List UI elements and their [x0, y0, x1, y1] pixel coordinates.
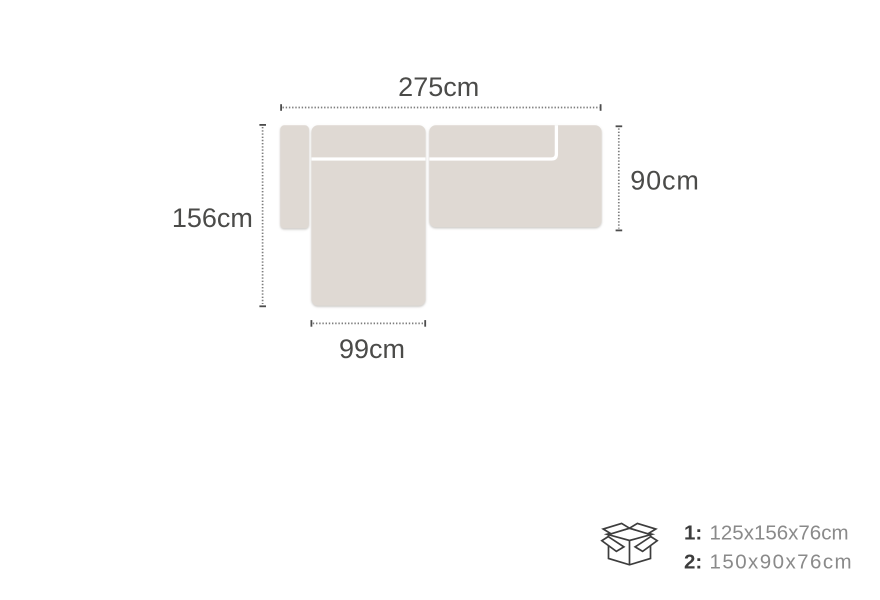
svg-text:2:150x90x76cm: 2:150x90x76cm	[684, 551, 853, 574]
svg-text:99cm: 99cm	[339, 334, 405, 364]
svg-text:156cm: 156cm	[172, 203, 253, 233]
svg-text:90cm: 90cm	[630, 166, 700, 196]
svg-text:275cm: 275cm	[398, 72, 479, 102]
svg-text:1:125x156x76cm: 1:125x156x76cm	[684, 522, 849, 545]
